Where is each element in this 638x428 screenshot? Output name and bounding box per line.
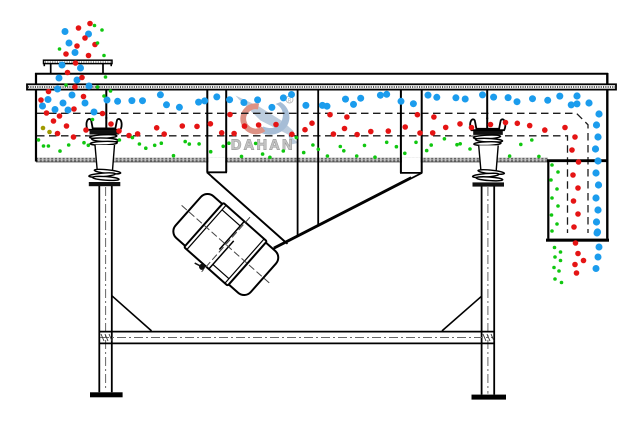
svg-text:R: R — [288, 98, 292, 104]
